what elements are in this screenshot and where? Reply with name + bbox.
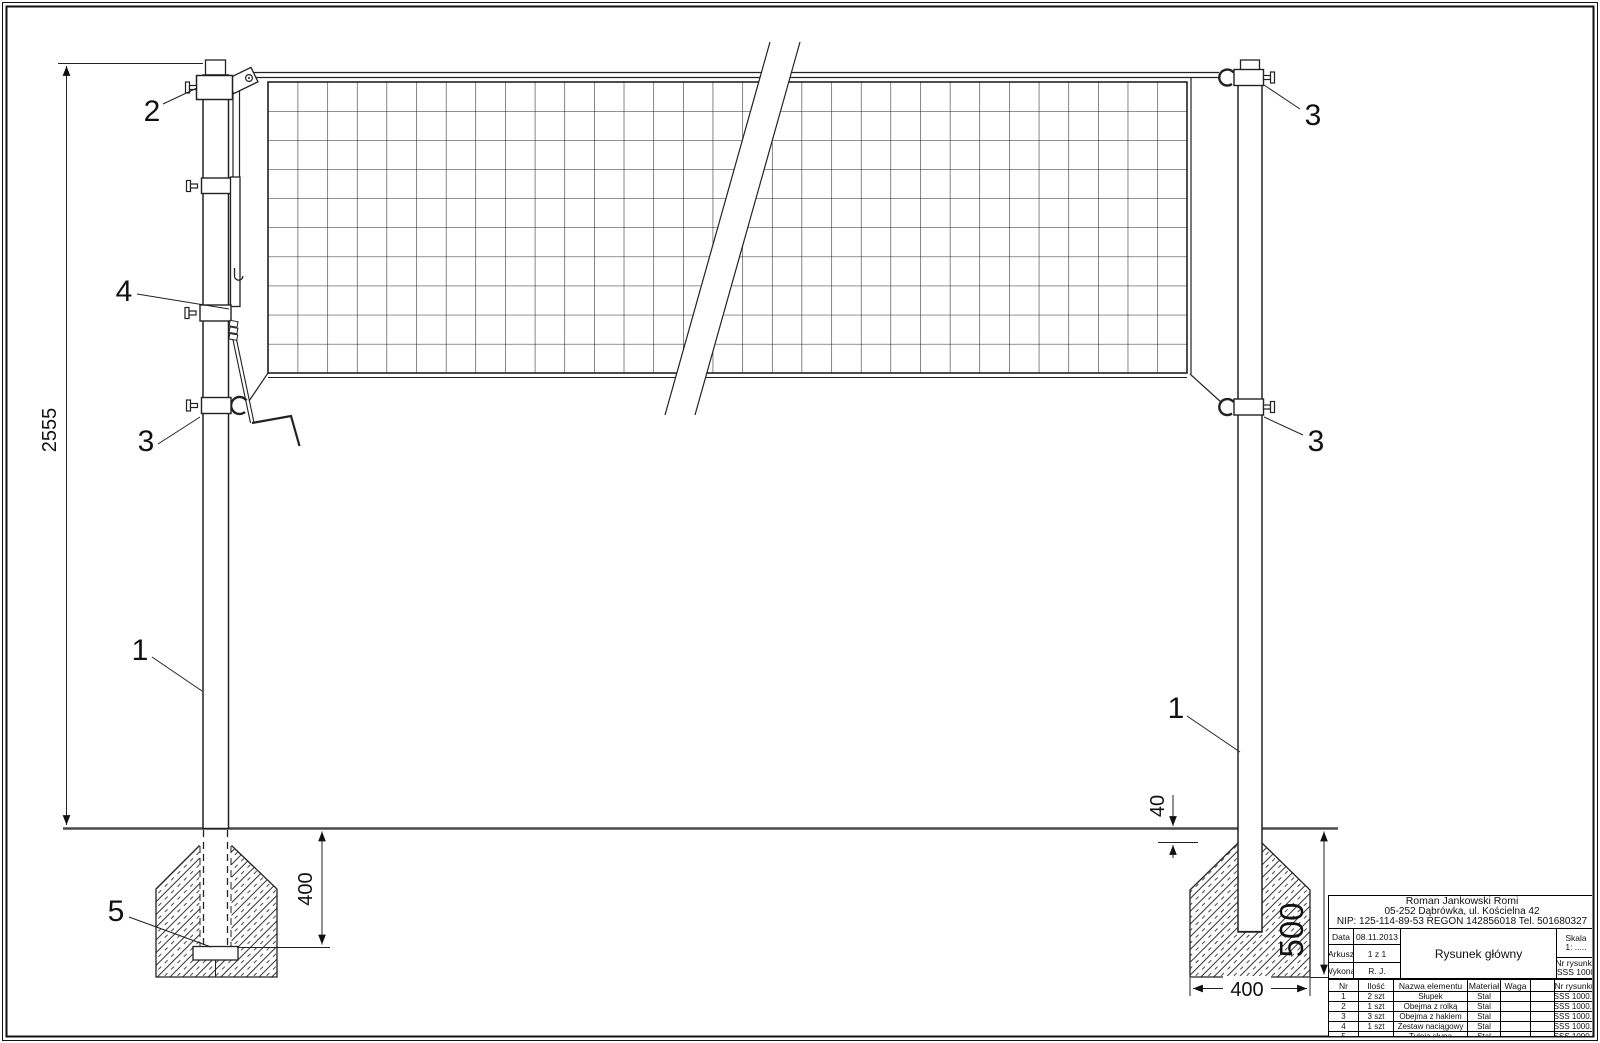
callout-4-label: 4 <box>116 275 133 308</box>
clamp-with-hook-right-bottom <box>1219 399 1274 415</box>
field-data-value: 08.11.2013 <box>1354 929 1401 945</box>
clamp-with-hook-right-top <box>1219 70 1274 86</box>
drawing-number-value: SSS 1000 <box>1557 968 1592 977</box>
post-sleeve-plate <box>193 947 238 961</box>
callout-3-bottom-right-label: 3 <box>1308 425 1325 458</box>
tensioner-bar <box>231 177 243 307</box>
crank-handle <box>252 416 300 446</box>
table-row: 4 1 szt Zestaw naciągowy Stal SSS 1000.4 <box>1329 1022 1592 1032</box>
bolt-icon <box>187 181 198 192</box>
table-row: 1 2 szt Słupek Stal SSS 1000.1 <box>1329 992 1592 1002</box>
parts-table: Nr Ilość Nazwa elementu Materiał Waga Nr… <box>1329 979 1592 1036</box>
company-header: Roman Jankowski Romi 05-252 Dąbrówka, ul… <box>1329 896 1592 929</box>
dim-label-500: 500 <box>1273 902 1310 957</box>
dim-label-40: 40 <box>1147 795 1169 817</box>
table-row: 3 3 szt Obejma z hakiem Stal SSS 1000.3 <box>1329 1012 1592 1022</box>
parts-table-header: Nr Ilość Nazwa elementu Materiał Waga Nr… <box>1329 980 1592 992</box>
col-waga: Waga <box>1501 980 1531 992</box>
callout-1-left-label: 1 <box>132 634 149 667</box>
foundation-left <box>156 830 277 977</box>
hook-icon <box>1219 70 1233 86</box>
net-top-cable <box>240 73 1219 78</box>
col-material: Materiał <box>1468 980 1501 992</box>
col-nr: Nr <box>1329 980 1359 992</box>
drawing-title: Rysunek główny <box>1401 929 1557 979</box>
callout-2-label: 2 <box>144 95 161 128</box>
drawing-sheet: 2555 400 40 500 400 2 <box>0 0 1600 1043</box>
dimension-post-height: 2555 <box>39 64 203 826</box>
field-wykonal-value: R. J. <box>1354 963 1401 979</box>
company-ids: NIP: 125-114-89-53 REGON 142856018 Tel. … <box>1337 917 1587 928</box>
bolt-icon <box>187 400 198 411</box>
field-wykonal-label: Wykonał <box>1329 963 1354 979</box>
callout-5-label: 5 <box>108 895 125 928</box>
table-row: 5 Tuleja słupa Stal SSS 1000.5 <box>1329 1032 1592 1036</box>
callout-3-top-right-label: 3 <box>1305 99 1322 132</box>
col-ilosc: Ilość <box>1359 980 1394 992</box>
bolt-icon <box>185 308 196 319</box>
callout-3-left-label: 3 <box>138 425 155 458</box>
left-post <box>203 60 229 829</box>
dimension-foundation-depth: 500 <box>1273 832 1334 978</box>
drawing-info: Data Arkusz Wykonał 08.11.2013 1 z 1 R. … <box>1329 929 1592 979</box>
hook-icon <box>1219 399 1233 415</box>
dim-label-2555: 2555 <box>39 408 61 453</box>
bolt-icon <box>1264 402 1275 413</box>
dim-label-400-left: 400 <box>295 872 317 905</box>
field-arkusz-label: Arkusz <box>1329 945 1354 963</box>
scale-cell: Skala 1: ..... <box>1557 929 1592 958</box>
scale-value: 1: ..... <box>1565 943 1586 952</box>
drawing-number-cell: Nr rysunku SSS 1000 <box>1557 958 1592 979</box>
tensioner-clamp-lower <box>185 305 231 321</box>
right-post <box>1238 60 1262 932</box>
dimension-top-offset: 40 <box>1147 795 1198 858</box>
title-block: Roman Jankowski Romi 05-252 Dąbrówka, ul… <box>1328 895 1592 1036</box>
col-nazwa: Nazwa elementu <box>1394 980 1468 992</box>
field-arkusz-value: 1 z 1 <box>1354 945 1401 963</box>
clamp-with-hook-left <box>187 397 247 414</box>
field-data-label: Data <box>1329 929 1354 945</box>
table-row: 2 1 szt Obejma z rolką Stal SSS 1000.2 <box>1329 1002 1592 1012</box>
col-nr-rysunku: Nr rysunku <box>1555 980 1592 992</box>
dimension-foundation-width: 400 <box>1190 976 1310 1001</box>
tensioner-clamp-upper <box>187 178 232 194</box>
col-empty <box>1531 980 1555 992</box>
technical-drawing: 2555 400 40 500 400 2 <box>0 0 1600 1043</box>
bolt-icon <box>1264 72 1275 83</box>
hook-icon <box>231 397 246 414</box>
dim-label-400-bottom: 400 <box>1230 979 1263 1001</box>
callout-1-right-label: 1 <box>1168 692 1185 725</box>
